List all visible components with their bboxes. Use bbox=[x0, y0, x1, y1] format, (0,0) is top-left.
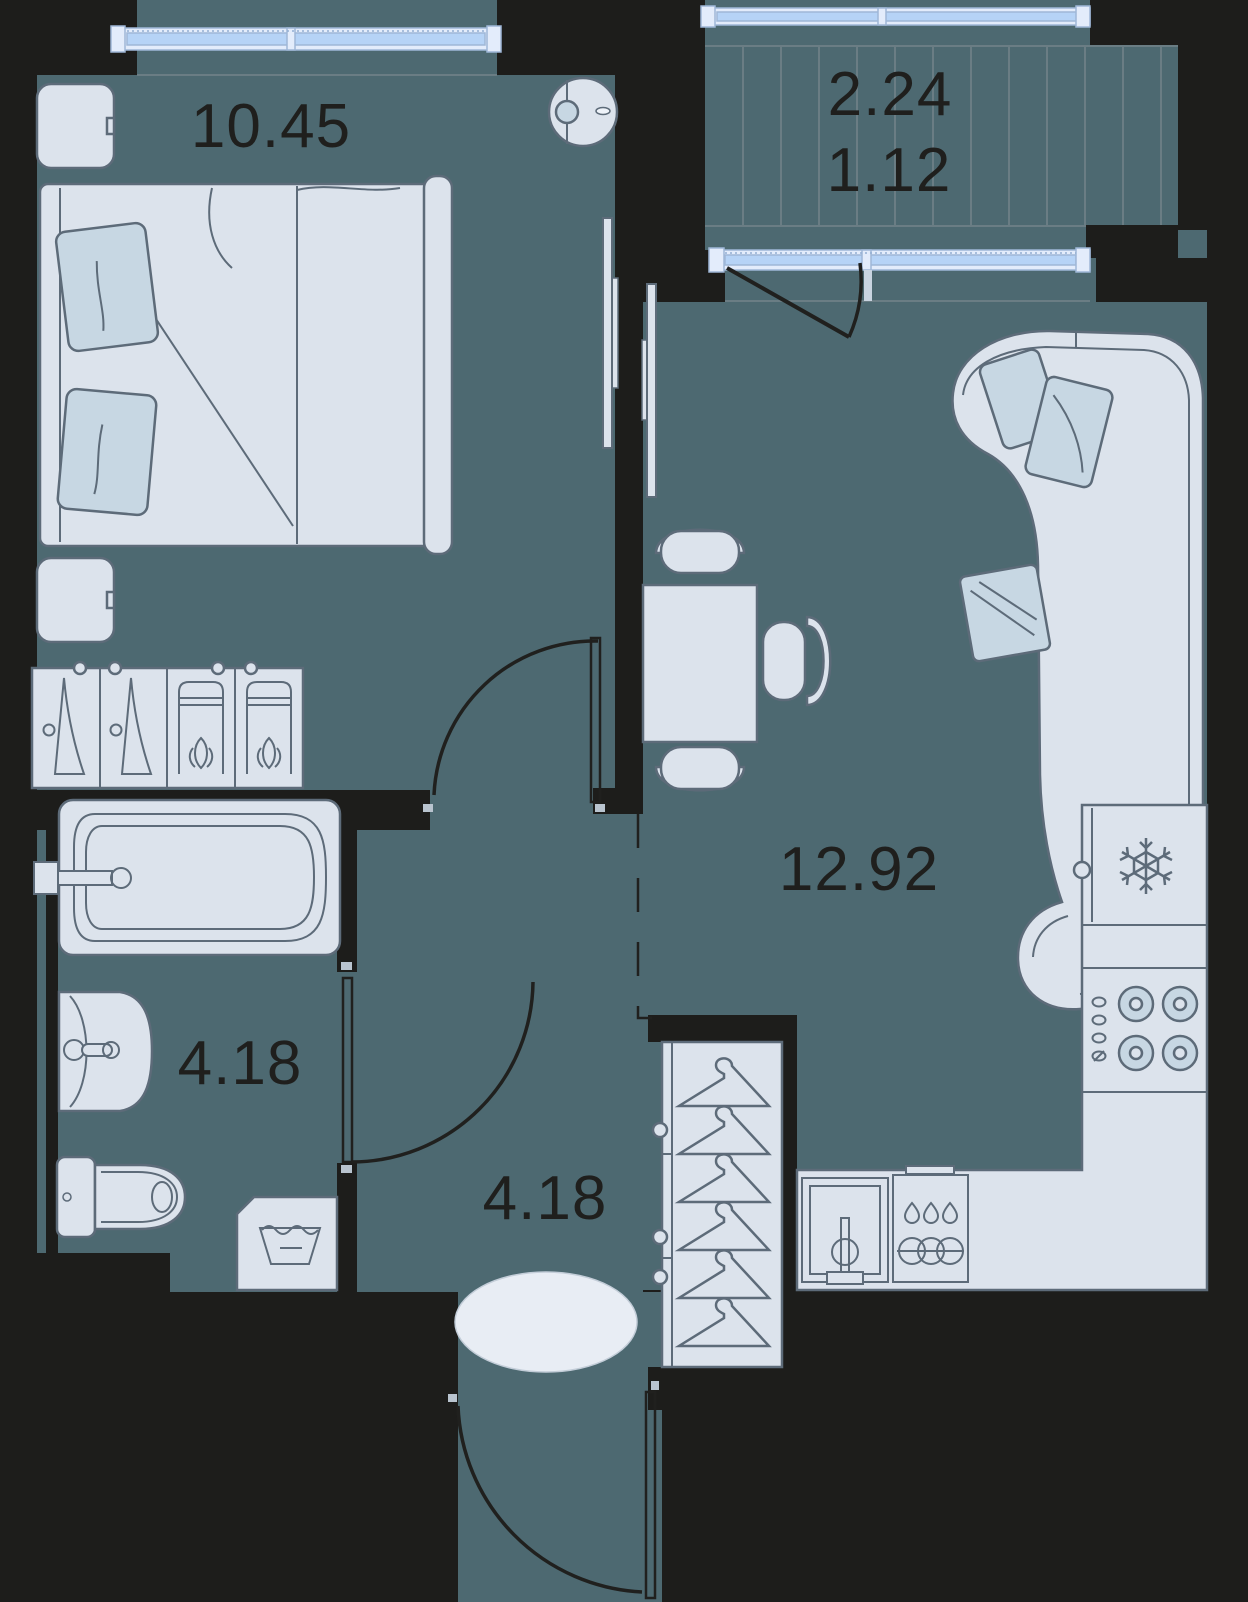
dining-table bbox=[643, 585, 757, 742]
rug bbox=[455, 1272, 637, 1372]
bathroom-area-label: 4.18 bbox=[178, 1033, 303, 1095]
bathtub bbox=[34, 800, 340, 955]
pillow bbox=[57, 388, 157, 515]
sofa-blanket bbox=[959, 564, 1051, 662]
balcony-area-label-2: 1.12 bbox=[827, 140, 952, 202]
nightstand-top bbox=[37, 84, 114, 168]
double-bed bbox=[40, 176, 452, 554]
dishwasher bbox=[893, 1166, 968, 1282]
vanity-sink bbox=[59, 992, 152, 1111]
kitchen-sink bbox=[802, 1178, 888, 1284]
dining-chair-bottom bbox=[656, 747, 744, 790]
pillow bbox=[55, 222, 159, 352]
nightstand-bottom bbox=[37, 558, 114, 642]
wardrobe bbox=[653, 1042, 782, 1367]
hallway-area-label: 4.18 bbox=[483, 1168, 608, 1230]
dresser bbox=[32, 662, 303, 788]
dining-chair-top bbox=[656, 530, 744, 573]
robot-vacuum bbox=[549, 78, 617, 146]
floor-plan: 10.45 2.24 1.12 12.92 4.18 4.18 bbox=[0, 0, 1248, 1602]
toilet bbox=[57, 1157, 185, 1237]
balcony-area-label: 2.24 bbox=[828, 64, 953, 126]
balcony-window bbox=[701, 6, 1090, 27]
kitchen-living-area-label: 12.92 bbox=[779, 839, 939, 901]
floor-plan-svg bbox=[0, 0, 1248, 1602]
bedroom-area-label: 10.45 bbox=[191, 96, 351, 158]
bedroom-window bbox=[111, 26, 501, 52]
washing-machine bbox=[237, 1197, 337, 1290]
